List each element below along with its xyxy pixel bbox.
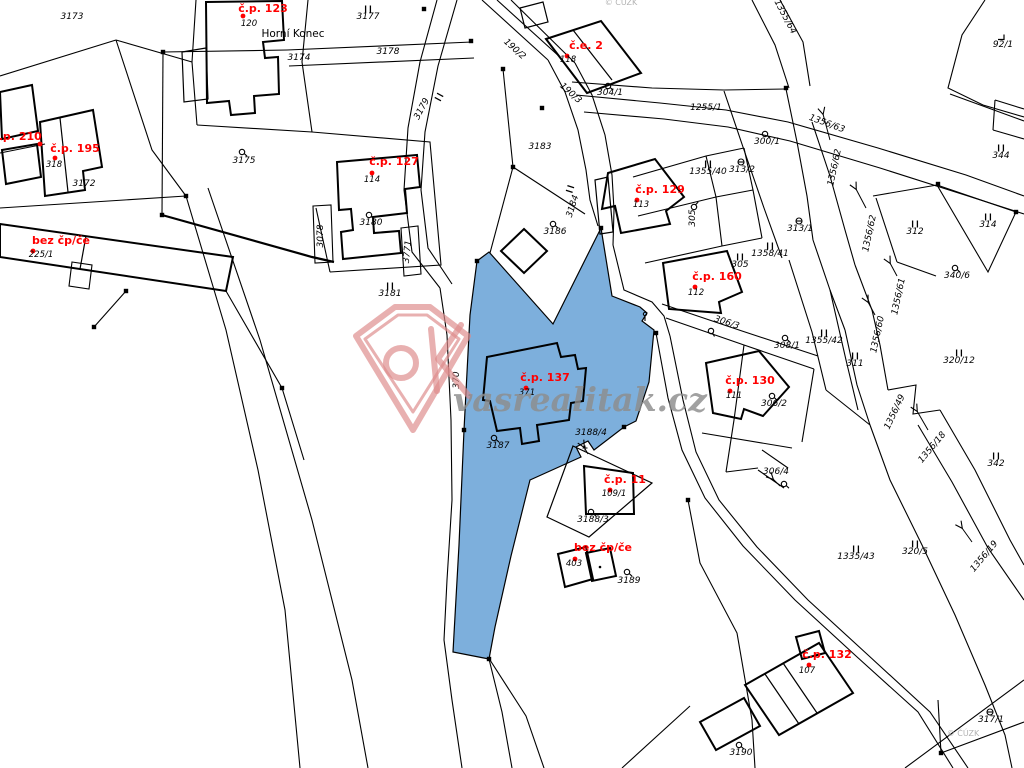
svg-text:bez čp/če: bez čp/če: [574, 541, 632, 554]
parcel-label: 313/2: [729, 165, 755, 175]
parcel-label: 1356/60: [869, 315, 887, 354]
copyright-top: © ČÚZK: [605, 0, 638, 7]
house-label-cp132: č.p. 132107: [799, 648, 852, 676]
parcel-label: 3187: [487, 441, 510, 451]
svg-text:118: 118: [560, 55, 577, 65]
slope-arrow-icon: [890, 263, 897, 276]
svg-text:č.p. 127: č.p. 127: [369, 155, 419, 168]
parcel-label: 3177: [357, 12, 380, 22]
parcel-label: 1355/64: [772, 0, 799, 36]
svg-text:č.p. 160: č.p. 160: [692, 270, 742, 283]
svg-text:109/1: 109/1: [602, 489, 627, 499]
parcel-label: 3181: [379, 289, 402, 299]
parcel-label: 314: [979, 220, 996, 230]
parcel-label: 342: [987, 459, 1004, 469]
parcel-label: 1356/49: [883, 393, 908, 431]
svg-text:č.p. 11: č.p. 11: [604, 473, 646, 486]
svg-text:bez čp/če: bez čp/če: [32, 234, 90, 247]
house-label-cp195: č.p. 195318: [46, 142, 100, 170]
watermarks: vasrealitak.cz © ČÚZK © ČÚZK: [356, 0, 980, 738]
parcel-label: 3175: [233, 156, 256, 166]
parcel-label: 317/1: [978, 715, 1004, 725]
house-label-cp123: č.p. 123120: [238, 2, 288, 29]
corner-icon: [998, 35, 1004, 40]
parcel-label: 92/1: [993, 40, 1013, 50]
point-dot: [599, 566, 602, 569]
svg-text:č.p. 195: č.p. 195: [50, 142, 100, 155]
parcel-label: 1356/18: [917, 430, 949, 465]
svg-text:č.p. 123: č.p. 123: [238, 2, 288, 15]
svg-text:225/1: 225/1: [29, 250, 54, 260]
svg-text:318: 318: [46, 160, 63, 170]
house-label-cp11: č.p. 11109/1: [602, 473, 646, 499]
parcel-label: 3174: [288, 53, 311, 63]
parcel-label: 311: [846, 359, 863, 369]
parcel-label: 1356/62: [861, 214, 879, 253]
parcel-label: 3186: [544, 227, 567, 237]
place-name: Horní Konec: [261, 28, 324, 40]
parcel-label: 313/1: [787, 224, 813, 234]
parcel-label: 3078: [316, 224, 326, 247]
parcel-label: 3189: [618, 576, 641, 586]
parcel-label: 304/1: [597, 88, 623, 98]
parcel-label: 344: [992, 151, 1009, 161]
house-label-cp160: č.p. 160112: [688, 270, 742, 298]
parcel-label: 306/3: [713, 314, 741, 332]
slope-arrow-icon: [856, 189, 866, 208]
watermark-site: vasrealitak.cz: [453, 380, 708, 419]
svg-text:č.p. 130: č.p. 130: [725, 374, 775, 387]
building-cp132-annex: [700, 698, 760, 750]
house-label-bez-cpce-2: bez čp/če403: [566, 541, 632, 569]
parcel-label: 190/2: [501, 37, 527, 62]
house-label-bez-cpce-1: bez čp/če225/1: [29, 234, 90, 260]
parcel-label: 305: [731, 260, 748, 270]
highlighted-parcel-3187[interactable]: [453, 228, 654, 659]
parcel-label: 3188/3: [577, 515, 609, 525]
parcel-label: 305: [688, 209, 698, 226]
parcel-label: 320/5: [902, 547, 928, 557]
svg-text:č.p. 132: č.p. 132: [802, 648, 852, 661]
cadastral-map: 3173 3174 3177 3178 3179 3172 3175 3078 …: [0, 0, 1024, 768]
parcel-label: 1255/1: [690, 103, 722, 113]
meadow-icon: [435, 93, 443, 101]
parcel-label: 3172: [73, 179, 96, 189]
building-cp129: [602, 159, 684, 233]
slope-arrow-icon: [868, 302, 875, 315]
svg-text:107: 107: [799, 666, 816, 676]
parcel-label: 3184: [565, 194, 582, 219]
svg-text:120: 120: [241, 19, 257, 29]
building-3186: [501, 229, 547, 273]
realty-logo-icon: [356, 307, 469, 430]
parcel-label: 1355/40: [689, 167, 727, 177]
copyright-bottom: © ČÚZK: [947, 727, 980, 738]
parcel-label: 1358/41: [751, 249, 788, 259]
svg-text:114: 114: [364, 175, 380, 185]
parcel-label: 1356/61: [890, 277, 908, 316]
parcel-label: 1356/63: [807, 113, 846, 135]
svg-text:112: 112: [688, 288, 704, 298]
parcel-label: 320/12: [943, 356, 975, 366]
parcel-label: 340/6: [944, 271, 970, 281]
parcel-label: 3771: [402, 240, 414, 264]
parcel-label: 3178: [377, 47, 400, 57]
parcel-label: 1356/19: [969, 539, 1001, 574]
parcel-label: 3180: [360, 218, 383, 228]
parcel-label: 3183: [529, 142, 552, 152]
parcel-label: 306/4: [763, 467, 789, 477]
parcel-label: 308/1: [774, 341, 800, 351]
svg-text:č.e. 2: č.e. 2: [569, 39, 603, 52]
house-label-ce2: č.e. 2118: [560, 39, 603, 65]
parcel-label: 312: [906, 227, 923, 237]
parcel-label: 1355/42: [805, 336, 843, 346]
svg-text:403: 403: [566, 559, 582, 569]
svg-text:113: 113: [633, 200, 649, 210]
parcel-label: 306/2: [761, 399, 787, 409]
parcel-label: 1335/43: [837, 552, 875, 562]
svg-text:111: 111: [726, 391, 742, 401]
meadow-icon: [566, 186, 574, 193]
slope-arrow-icon: [962, 528, 972, 542]
svg-text:č.p. 210: č.p. 210: [0, 130, 42, 143]
svg-text:č.p. 129: č.p. 129: [635, 183, 685, 196]
house-label-cp130: č.p. 130111: [725, 374, 775, 401]
slope-arrow-icon: [773, 479, 780, 486]
parcel-label: 3188/4: [575, 428, 607, 438]
parcel-label: 1356/62: [826, 148, 844, 187]
parcel-label: 3190: [730, 748, 753, 758]
house-label-cp127: č.p. 127114: [364, 155, 419, 185]
parcel-label: 300/1: [754, 137, 780, 147]
parcel-label: 3173: [61, 12, 84, 22]
